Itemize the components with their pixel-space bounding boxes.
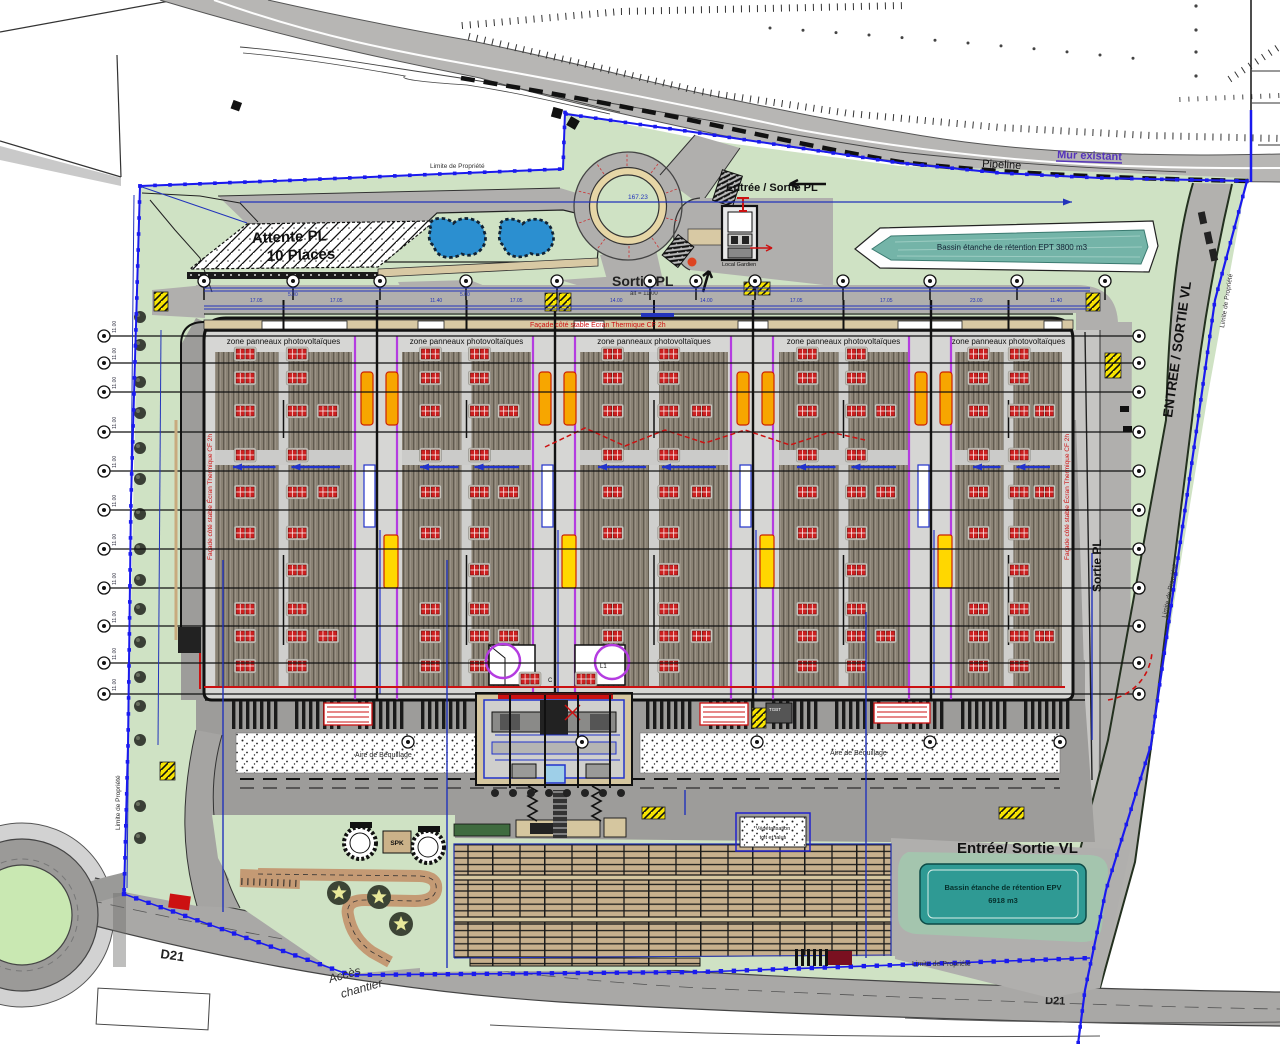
svg-text:Façade côté stable Écran Therm: Façade côté stable Écran Thermique CF 2h [205, 434, 214, 560]
svg-text:Bassin étanche de rétention EP: Bassin étanche de rétention EPT 3800 m3 [937, 243, 1088, 252]
svg-text:17.05: 17.05 [330, 298, 343, 304]
svg-text:zone panneaux photovoltaïques: zone panneaux photovoltaïques [597, 337, 710, 346]
svg-text:17.05: 17.05 [510, 298, 523, 304]
svg-text:Limite de Propriété: Limite de Propriété [115, 775, 122, 830]
svg-text:23.00: 23.00 [970, 298, 983, 304]
svg-text:17.05: 17.05 [250, 298, 263, 304]
svg-text:14.00: 14.00 [610, 298, 623, 304]
svg-text:11.00: 11.00 [112, 321, 118, 333]
svg-text:11.00: 11.00 [112, 573, 118, 585]
svg-text:10 Places: 10 Places [267, 246, 336, 265]
svg-text:Attente PL: Attente PL [252, 227, 328, 247]
svg-text:11.00: 11.00 [112, 417, 118, 429]
svg-text:11.00: 11.00 [112, 648, 118, 660]
svg-text:toit et talus: toit et talus [760, 835, 787, 841]
svg-text:5.00: 5.00 [288, 292, 298, 298]
svg-text:Aire de Béquillage: Aire de Béquillage [355, 752, 412, 759]
svg-text:Entrée/ Sortie VL: Entrée/ Sortie VL [957, 840, 1078, 857]
svg-text:Sortie PL: Sortie PL [612, 273, 674, 289]
svg-text:17.05: 17.05 [790, 298, 803, 304]
svg-text:Végétalisation: Végétalisation [756, 826, 791, 832]
svg-text:Bassin étanche de rétention EP: Bassin étanche de rétention EPV [944, 883, 1061, 892]
svg-text:6918 m3: 6918 m3 [988, 896, 1018, 905]
svg-text:17.05: 17.05 [880, 298, 893, 304]
svg-text:11.40: 11.40 [1050, 298, 1062, 304]
svg-text:Local Gardien: Local Gardien [722, 262, 756, 268]
svg-text:11.00: 11.00 [112, 495, 118, 507]
svg-text:11.00: 11.00 [112, 534, 118, 546]
svg-text:5.00: 5.00 [460, 292, 470, 298]
svg-text:Limite de Propriété: Limite de Propriété [430, 163, 485, 170]
svg-text:167.23: 167.23 [628, 194, 648, 201]
svg-text:Façade côté stable Écran Therm: Façade côté stable Écran Thermique CF 2h [530, 320, 666, 329]
svg-text:11.00: 11.00 [112, 679, 118, 691]
svg-text:11.00: 11.00 [112, 348, 118, 360]
svg-text:zone panneaux photovoltaïques: zone panneaux photovoltaïques [787, 337, 900, 346]
svg-text:Limite de Propriété: Limite de Propriété [912, 961, 971, 968]
svg-text:TGBT: TGBT [769, 707, 781, 712]
svg-text:L1: L1 [600, 664, 607, 670]
svg-text:zone panneaux photovoltaïques: zone panneaux photovoltaïques [227, 337, 340, 346]
svg-text:zone panneaux photovoltaïques: zone panneaux photovoltaïques [952, 337, 1065, 346]
svg-text:11.00: 11.00 [112, 377, 118, 389]
svg-text:14.00: 14.00 [700, 298, 713, 304]
svg-text:11.00: 11.00 [112, 456, 118, 468]
svg-text:C: C [548, 678, 553, 684]
svg-text:11.40: 11.40 [430, 298, 442, 304]
svg-text:11.00: 11.00 [112, 611, 118, 623]
svg-text:Sortie PL: Sortie PL [1090, 539, 1104, 592]
svg-text:SPK: SPK [390, 840, 404, 847]
svg-text:Aire de Béquillage: Aire de Béquillage [830, 750, 887, 757]
svg-text:Façade côté stable Écran Therm: Façade côté stable Écran Thermique CF 2h [1062, 434, 1071, 560]
svg-text:alt = 11.00: alt = 11.00 [630, 291, 658, 297]
svg-text:zone panneaux photovoltaïques: zone panneaux photovoltaïques [410, 337, 523, 346]
